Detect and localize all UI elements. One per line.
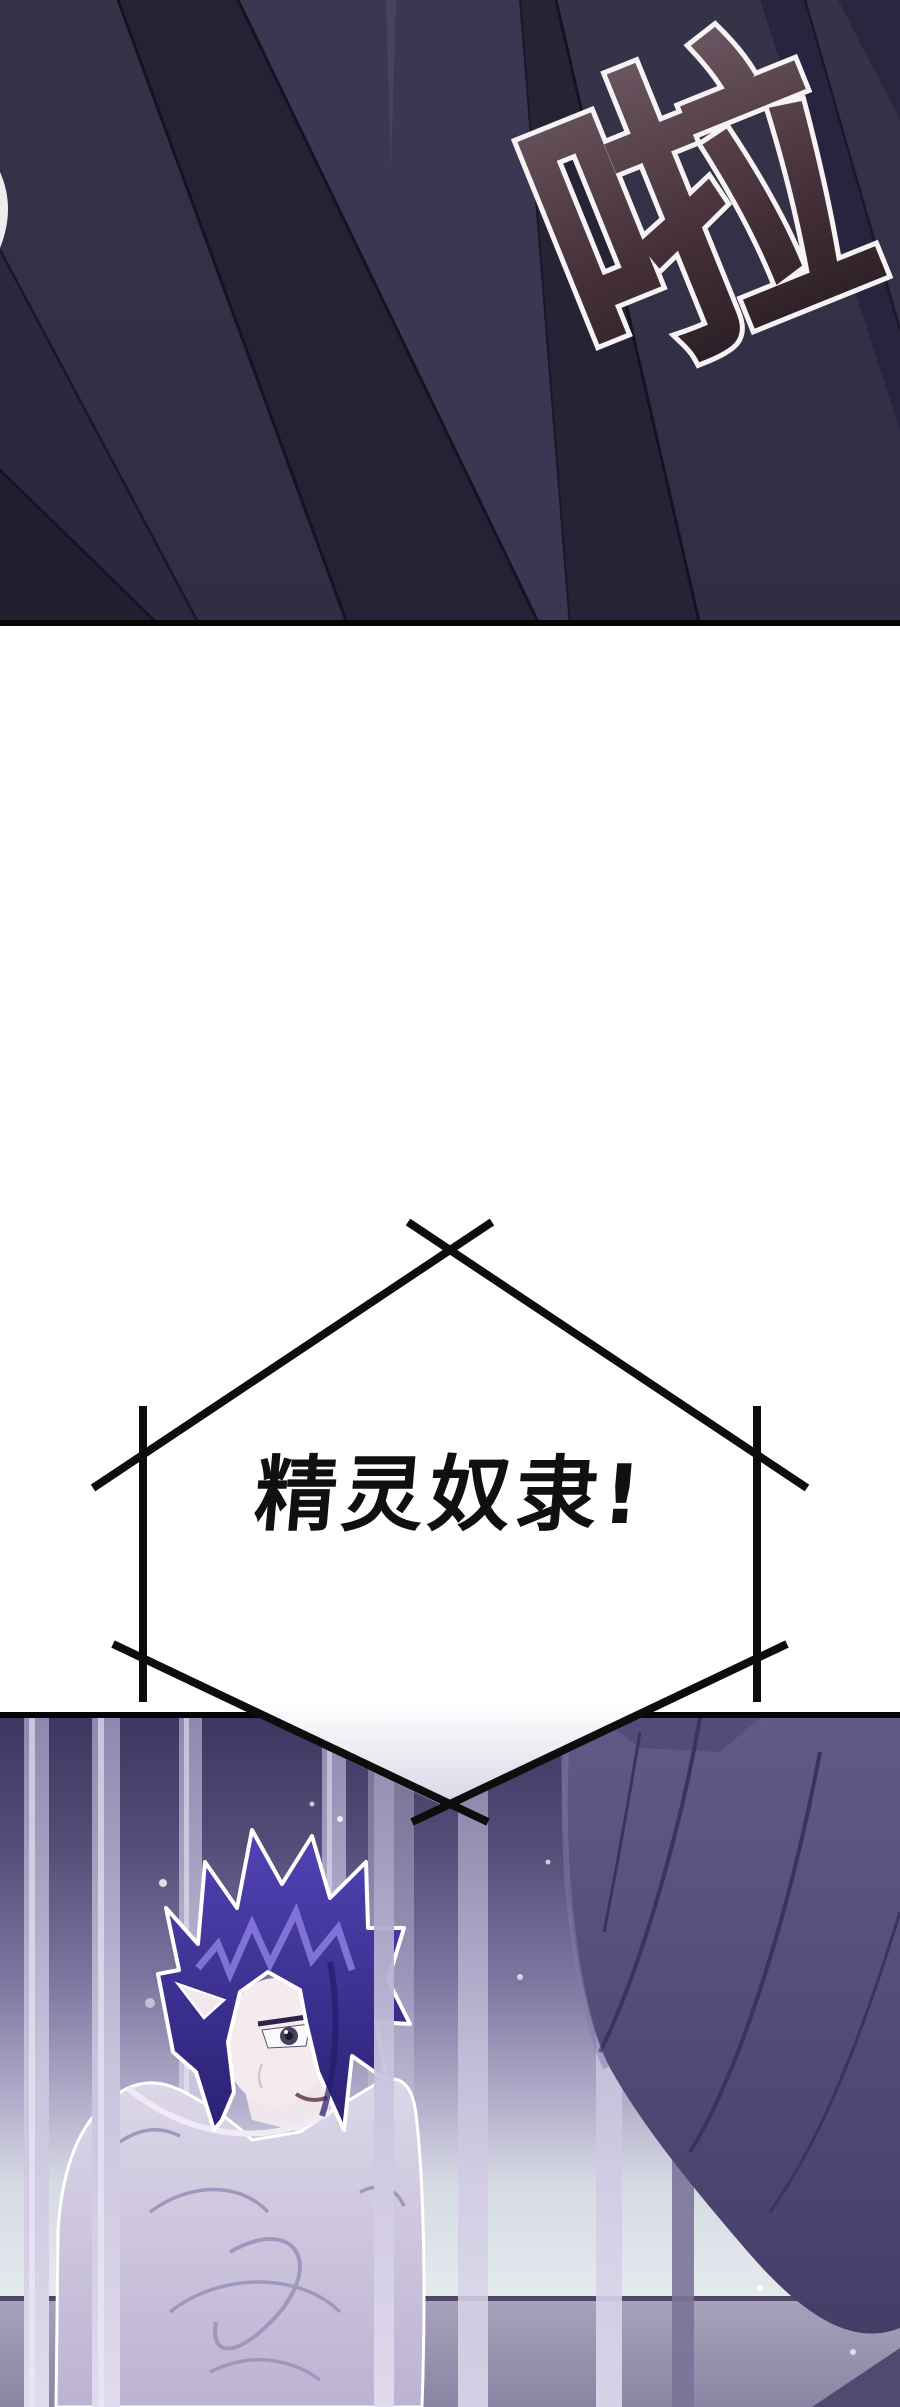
speech-bubble-text: 精灵奴隶! — [0, 1448, 900, 1545]
bottom-panel-top-border — [0, 1712, 900, 1718]
comic-page: 啦 — [0, 0, 900, 2407]
top-panel-bottom-border — [0, 620, 900, 626]
bottom-panel-prison-scene — [0, 1712, 900, 2407]
top-panel-cloak-closeup: 啦 — [0, 0, 900, 626]
